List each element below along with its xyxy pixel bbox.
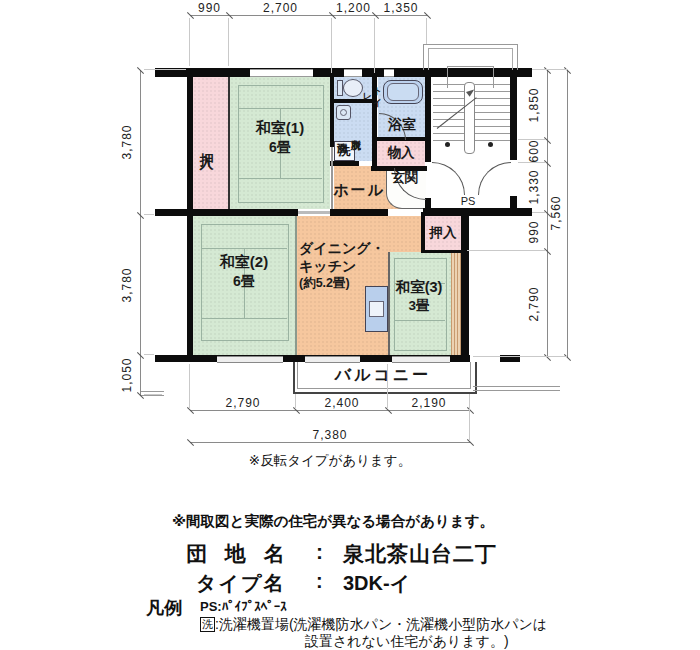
neighbor-balcony-rail [473, 386, 560, 387]
room-label-oshiire2: 押入 [423, 225, 463, 241]
dim-ext [144, 354, 154, 355]
dim-bottom-1: 2,400 [296, 396, 388, 410]
room-label-mononyu: 物入 [377, 145, 425, 161]
legend-ps-line: PS:ﾊﾟｲﾌﾟｽﾍﾟｰｽ [200, 599, 287, 614]
washbasin-bowl-icon [340, 109, 347, 116]
legend-laundry-line1: 洗:洗濯機置場(洗濯機防水パン・洗濯機小型防水パンは [200, 616, 547, 634]
room-label-washitsu2-size: 6畳 [197, 273, 291, 289]
room-label-washitsu3-size: 3畳 [387, 298, 451, 314]
landing-left-door-arc-icon [432, 162, 465, 195]
dim-line-top [190, 15, 427, 16]
room-label-ps: PS [454, 195, 482, 208]
window-washitsu2-balcony [217, 356, 283, 363]
room-label-hall: ホール [330, 181, 388, 198]
dim-left-0: 3,780 [120, 112, 134, 172]
tatami-line [238, 178, 322, 179]
dim-bottom-total: 7,380 [190, 428, 470, 442]
room-label-dk-line2: キッチン [299, 258, 387, 274]
note-flip: ※反転タイプがあります。 [230, 452, 430, 470]
room-label-dk-line3: (約5.2畳) [299, 276, 387, 290]
dim-bottom-0: 2,790 [190, 396, 296, 410]
dim-top-2: 1,200 [332, 1, 375, 15]
danchi-name-value: 泉北茶山台二丁 [343, 540, 497, 568]
dim-ext [473, 356, 567, 357]
landing-right-door-arc-icon [478, 162, 511, 195]
washitsu3-hatch-strip [451, 253, 461, 355]
tatami-line [201, 318, 287, 319]
danchi-name-colon: : [316, 540, 323, 564]
neighbor-balcony-rail-left [140, 391, 164, 392]
dim-right-3: 990 [527, 202, 541, 262]
type-name-colon: : [316, 570, 323, 593]
room-label-senmen: 洗面 [336, 118, 348, 152]
dim-line-right-outer [567, 70, 568, 357]
room-label-bath: 浴室 [379, 116, 425, 132]
room-label-washitsu2: 和室(2) [197, 253, 291, 270]
dim-line-bottom-outer [190, 442, 470, 443]
dim-ext [144, 394, 162, 395]
dim-top-0: 990 [190, 1, 229, 15]
room-label-washitsu1-size: 6畳 [233, 139, 327, 155]
dim-line-bottom-inner [190, 410, 470, 411]
wall-unit-right-upper [425, 68, 431, 162]
dim-top-3: 1,350 [375, 1, 427, 15]
dim-right-total: 7,560 [549, 183, 563, 243]
type-name-value: 3DK-イ [343, 570, 410, 597]
wall-stub-left-mid [155, 209, 193, 216]
legend-laundry-mark-box: 洗 [200, 617, 215, 632]
window-washitsu1 [250, 69, 313, 77]
neighbor-balcony-rail-left [140, 395, 164, 396]
kitchen-sink-bowl-icon [369, 301, 384, 317]
dim-line-left [140, 70, 141, 395]
sliding-door-washitsu1-hall [331, 147, 333, 209]
tatami-line [394, 320, 445, 321]
dim-ext [144, 214, 154, 215]
room-label-genkan: 玄関 [384, 170, 426, 186]
wall-stair-right-upper [510, 68, 517, 160]
room-dk-floor-ext [388, 216, 421, 252]
dim-top-1: 2,700 [229, 1, 332, 15]
dim-ext [331, 18, 332, 73]
dim-ext [426, 18, 427, 44]
type-name-label: タイプ名 [196, 570, 285, 597]
wall-oshiire2-bottom [423, 250, 465, 253]
wall-mid-hall [330, 209, 388, 216]
stair-newel-dot [445, 142, 450, 147]
dim-ext [144, 69, 186, 70]
room-label-oshiire1: 押入 [199, 98, 215, 190]
dim-ext [189, 18, 190, 66]
legend-title: 凡例 [146, 596, 182, 620]
danchi-name-label: 団 地 名 [186, 540, 291, 568]
wall-stair-right-lower [510, 196, 517, 208]
sliding-door-washitsu1-dk [298, 211, 330, 214]
partition-oshiire1 [228, 77, 230, 209]
sliding-door-washitsu2-dk [295, 216, 297, 355]
dim-ext [228, 18, 229, 66]
room-label-dk-line1: ダイニング・ [299, 240, 387, 256]
dim-left-1: 3,780 [120, 255, 134, 315]
floor-plan-page: 洗 押入 和室(1) 6畳 トイレ 洗面 脱衣所 浴室 物入 玄関 ホール 押入… [0, 0, 700, 650]
wall-mid-washitsu [192, 209, 298, 216]
dim-bottom-2: 2,190 [388, 396, 470, 410]
wall-stair-bottom [423, 208, 532, 216]
dim-left-2: 1,050 [120, 345, 134, 405]
window-bath [384, 69, 394, 77]
room-label-washitsu1: 和室(1) [233, 119, 327, 136]
room-label-toilet: トイレ [362, 77, 383, 105]
toilet-icon [343, 79, 363, 97]
legend-laundry-text1: :洗濯機置場(洗濯機防水パン・洗濯機小型防水パンは [215, 616, 547, 632]
stair-newel-dot [488, 142, 493, 147]
dim-right-4: 2,790 [527, 274, 541, 334]
legend-laundry-line2: 設置されない住宅があります。) [305, 633, 509, 650]
room-label-balcony: バルコニー [303, 366, 463, 384]
note-layout-disclaimer: ※間取図と実際の住宅が異なる場合があります。 [172, 512, 494, 531]
bathtub-inner-icon [387, 83, 419, 101]
dim-ext [374, 18, 375, 73]
room-label-datsui: 脱衣所 [350, 108, 362, 156]
wall-washitsu1-right [330, 75, 334, 147]
room-label-washitsu3: 和室(3) [387, 279, 451, 296]
wall-washroom-bottom [330, 161, 359, 166]
dim-ext [532, 69, 568, 70]
window-toilet [344, 69, 362, 77]
neighbor-balcony-rail [473, 390, 560, 391]
